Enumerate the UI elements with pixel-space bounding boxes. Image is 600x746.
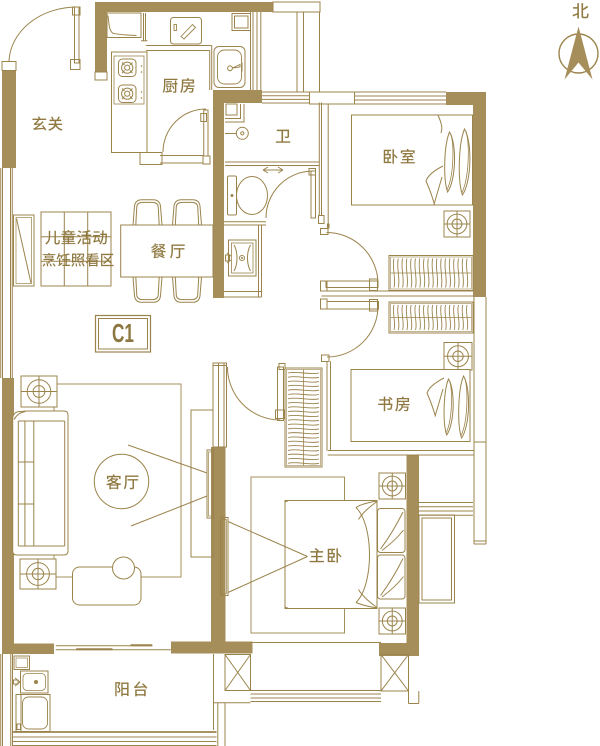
svg-text:C1: C1 <box>112 318 134 348</box>
